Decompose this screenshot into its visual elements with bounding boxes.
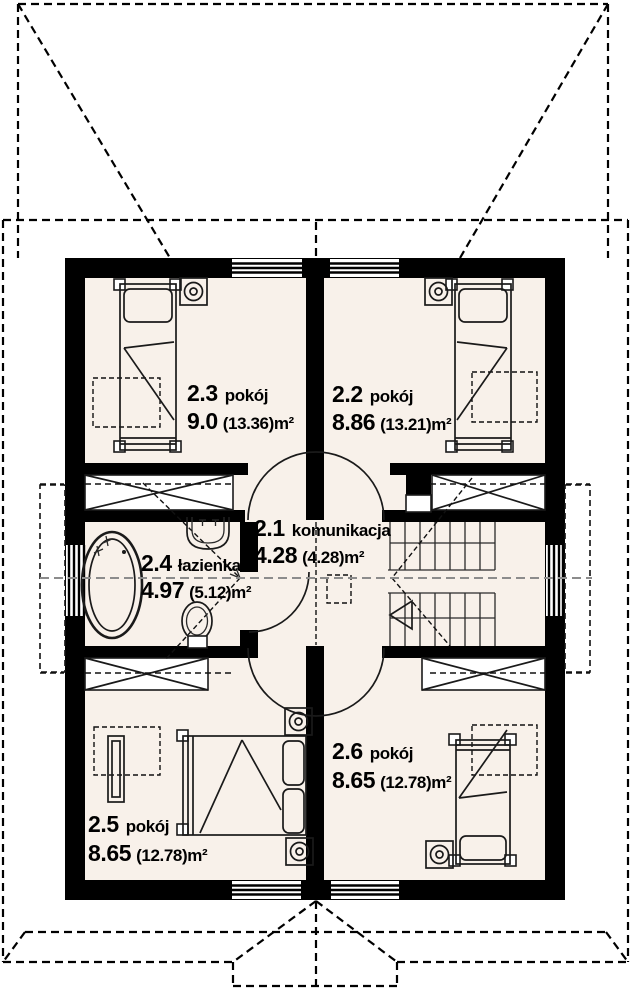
- window-south-left: [232, 881, 301, 899]
- kneewall-box-top-right: [432, 475, 545, 510]
- window-north-right: [330, 259, 399, 277]
- window-north-left: [232, 259, 302, 277]
- floor-plan-drawing: 2.3pokój 9.0(13.36)m² 2.2pokój 8.86(13.2…: [0, 0, 631, 990]
- window-south-right: [331, 881, 399, 899]
- window-east: [546, 545, 564, 616]
- chimney: [406, 473, 431, 512]
- floor-plan-page: 2.3pokój 9.0(13.36)m² 2.2pokój 8.86(13.2…: [0, 0, 631, 990]
- kneewall-box-top-left: [85, 475, 233, 510]
- kneewall-box-bottom-left: [85, 658, 208, 690]
- kneewall-box-bottom-right: [422, 658, 545, 690]
